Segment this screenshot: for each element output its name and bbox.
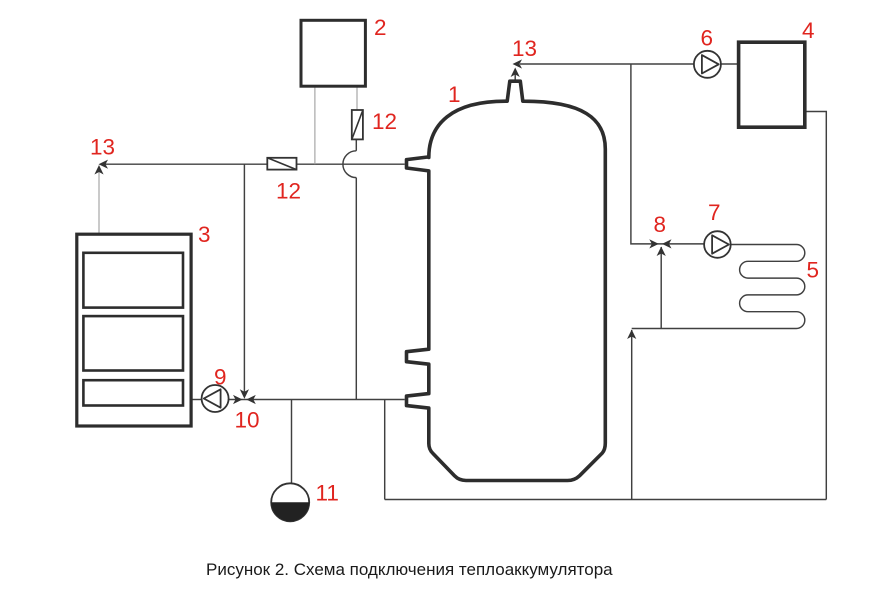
svg-text:11: 11 (316, 480, 339, 505)
svg-text:6: 6 (701, 26, 714, 51)
svg-text:2: 2 (374, 15, 387, 40)
svg-text:13: 13 (90, 135, 115, 160)
svg-text:5: 5 (807, 258, 820, 283)
svg-text:13: 13 (512, 36, 537, 61)
svg-text:1: 1 (448, 82, 461, 107)
svg-text:12: 12 (276, 179, 301, 204)
svg-text:9: 9 (214, 365, 227, 390)
svg-text:12: 12 (372, 109, 397, 134)
svg-text:4: 4 (802, 18, 815, 43)
svg-text:8: 8 (654, 212, 667, 237)
svg-text:7: 7 (708, 200, 721, 225)
svg-text:3: 3 (198, 222, 211, 247)
svg-text:Рисунок 2. Схема подключения т: Рисунок 2. Схема подключения теплоаккуму… (206, 560, 613, 579)
svg-text:10: 10 (235, 407, 260, 432)
